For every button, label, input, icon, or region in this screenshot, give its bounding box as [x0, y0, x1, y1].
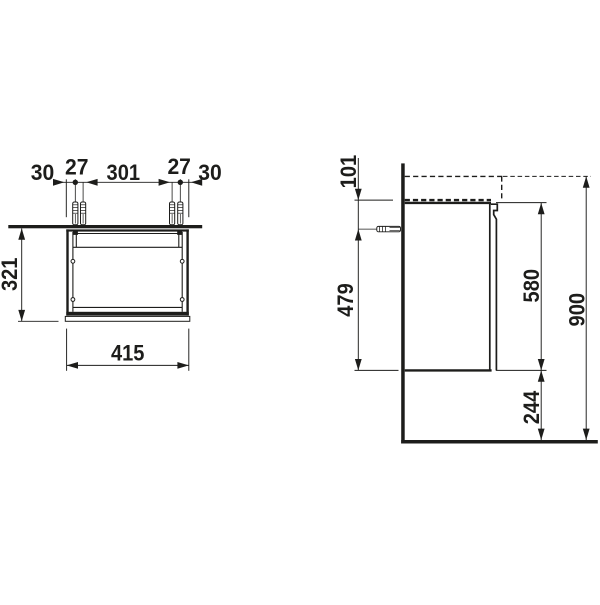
svg-text:301: 301 — [107, 160, 141, 185]
svg-text:479: 479 — [333, 283, 358, 317]
svg-text:321: 321 — [0, 258, 22, 292]
svg-text:244: 244 — [519, 390, 544, 424]
svg-text:415: 415 — [111, 340, 145, 365]
svg-text:27: 27 — [65, 154, 89, 179]
svg-text:101: 101 — [336, 155, 361, 189]
svg-text:900: 900 — [565, 293, 590, 327]
svg-text:30: 30 — [31, 160, 55, 185]
svg-text:30: 30 — [198, 160, 222, 185]
svg-text:580: 580 — [519, 269, 544, 303]
svg-text:27: 27 — [167, 154, 191, 179]
